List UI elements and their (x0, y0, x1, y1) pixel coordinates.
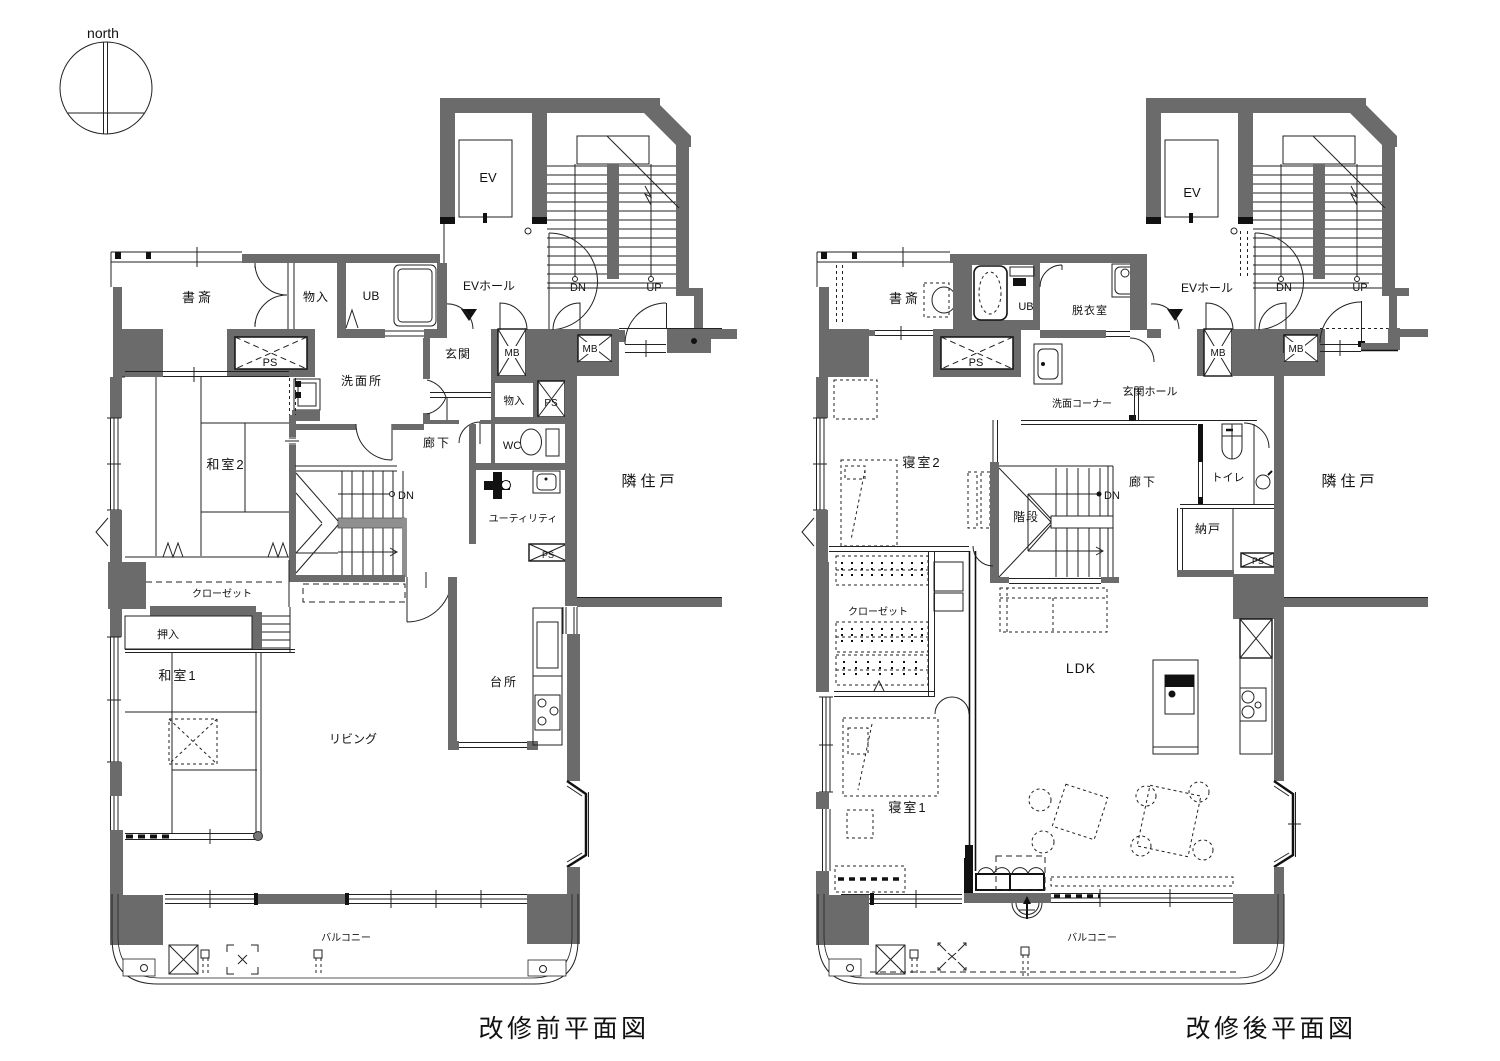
svg-text:EVホール: EVホール (1181, 281, 1233, 295)
svg-text:押入: 押入 (157, 627, 179, 641)
svg-text:寝室2: 寝室2 (902, 455, 941, 470)
svg-text:和室1: 和室1 (158, 668, 197, 683)
svg-text:寝室1: 寝室1 (888, 800, 927, 815)
svg-text:物入: 物入 (303, 290, 329, 304)
svg-text:書斎: 書斎 (889, 291, 921, 306)
svg-text:ユーティリティ: ユーティリティ (489, 514, 558, 525)
svg-text:トイレ: トイレ (1212, 472, 1245, 484)
svg-text:PS: PS (263, 357, 278, 369)
svg-text:クローゼット: クローゼット (848, 606, 908, 618)
svg-text:バルコニー: バルコニー (1067, 932, 1117, 944)
svg-text:UB: UB (363, 289, 380, 303)
svg-text:クローゼット: クローゼット (192, 588, 252, 600)
svg-text:納戸: 納戸 (1195, 522, 1221, 536)
svg-text:MB: MB (1211, 348, 1226, 359)
svg-text:WC: WC (503, 440, 521, 452)
svg-text:リビング: リビング (329, 732, 377, 746)
svg-text:PS: PS (969, 357, 984, 369)
svg-text:MB: MB (583, 344, 598, 355)
svg-text:玄関: 玄関 (445, 346, 471, 361)
svg-text:PS: PS (544, 398, 558, 409)
svg-text:PS: PS (1252, 556, 1264, 566)
svg-text:廊下: 廊下 (423, 435, 451, 450)
svg-text:EV: EV (479, 170, 497, 185)
svg-text:MB: MB (505, 348, 520, 359)
svg-text:脱衣室: 脱衣室 (1072, 303, 1108, 317)
svg-text:洗面コーナー: 洗面コーナー (1052, 398, 1112, 410)
svg-text:廊下: 廊下 (1129, 474, 1157, 489)
svg-text:改修前平面図: 改修前平面図 (478, 1015, 649, 1043)
svg-text:DN: DN (398, 490, 414, 502)
svg-text:隣住戸: 隣住戸 (621, 473, 678, 490)
svg-text:洗面所: 洗面所 (341, 374, 383, 388)
svg-text:改修後平面図: 改修後平面図 (1185, 1015, 1356, 1043)
svg-text:書斎: 書斎 (182, 290, 214, 305)
svg-text:MB: MB (1289, 344, 1304, 355)
svg-text:north: north (87, 25, 119, 41)
svg-text:台所: 台所 (490, 674, 518, 689)
svg-text:EVホール: EVホール (463, 279, 515, 293)
svg-text:玄関ホール: 玄関ホール (1123, 384, 1178, 398)
svg-text:EV: EV (1183, 185, 1201, 200)
svg-text:DN: DN (1104, 490, 1120, 502)
svg-text:バルコニー: バルコニー (321, 932, 371, 944)
svg-text:階段: 階段 (1013, 509, 1039, 524)
svg-text:UB: UB (1018, 301, 1033, 313)
svg-text:LDK: LDK (1066, 660, 1096, 676)
svg-text:PS: PS (542, 550, 554, 560)
svg-text:物入: 物入 (504, 394, 525, 407)
svg-text:和室2: 和室2 (206, 457, 245, 472)
svg-text:隣住戸: 隣住戸 (1321, 473, 1378, 490)
